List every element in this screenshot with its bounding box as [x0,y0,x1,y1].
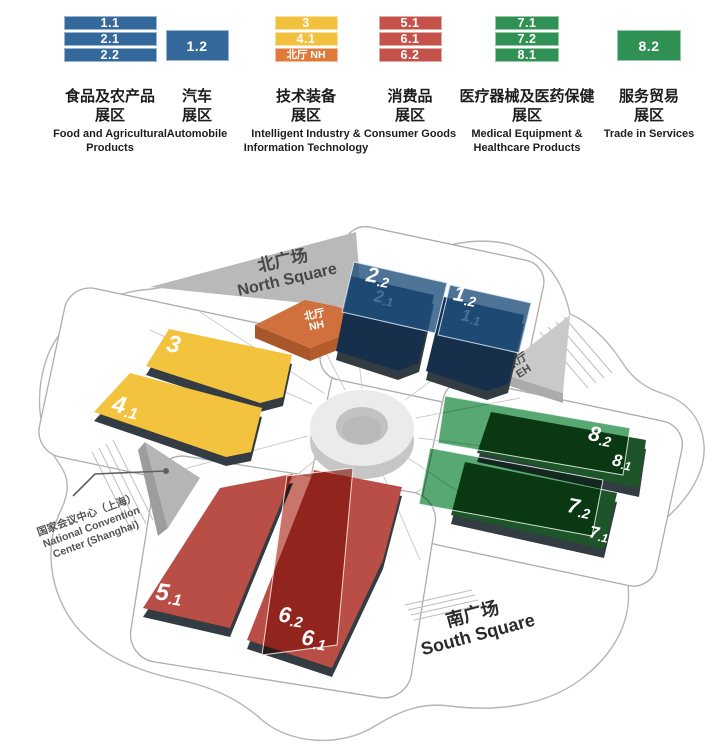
legend-block-1-1: 1.1 [64,16,157,30]
legend-block-2-1: 2.1 [64,32,157,46]
legend-block-2-2: 2.2 [64,48,157,62]
legend-name-en2: Information Technology [231,142,381,156]
legend-block-8-2: 8.2 [617,30,681,61]
legend-block-3: 3 [275,16,338,30]
legend-name-en: Trade in Services [579,128,719,142]
legend-name-zh2: 展区 [157,106,237,125]
legend-name-zh2: 展区 [579,106,719,125]
legend-block-7-2: 7.2 [495,32,559,46]
legend-name-zh: 服务贸易 [579,87,719,106]
legend-block-5-1: 5.1 [379,16,442,30]
legend-block-4-1: 4.1 [275,32,338,46]
ncc-leader-dot [163,468,169,474]
legend-block-nh: 北厅 NH [275,48,338,62]
legend-block-7-1: 7.1 [495,16,559,30]
legend-block-1-2: 1.2 [166,30,229,61]
legend-name-zh: 汽车 [157,87,237,106]
legend-group-services: 8.2 服务贸易 展区 Trade in Services [579,16,719,142]
legend-block-6-1: 6.1 [379,32,442,46]
legend-name-en: Automobile [157,128,237,142]
central-ring [310,390,414,479]
legend-group-automobile: 1.2 汽车 展区 Automobile [157,16,237,142]
legend-block-8-1: 8.1 [495,48,559,62]
legend-block-6-2: 6.2 [379,48,442,62]
legend-name-en2: Healthcare Products [442,142,612,156]
legend-name-en2: Products [40,142,180,156]
